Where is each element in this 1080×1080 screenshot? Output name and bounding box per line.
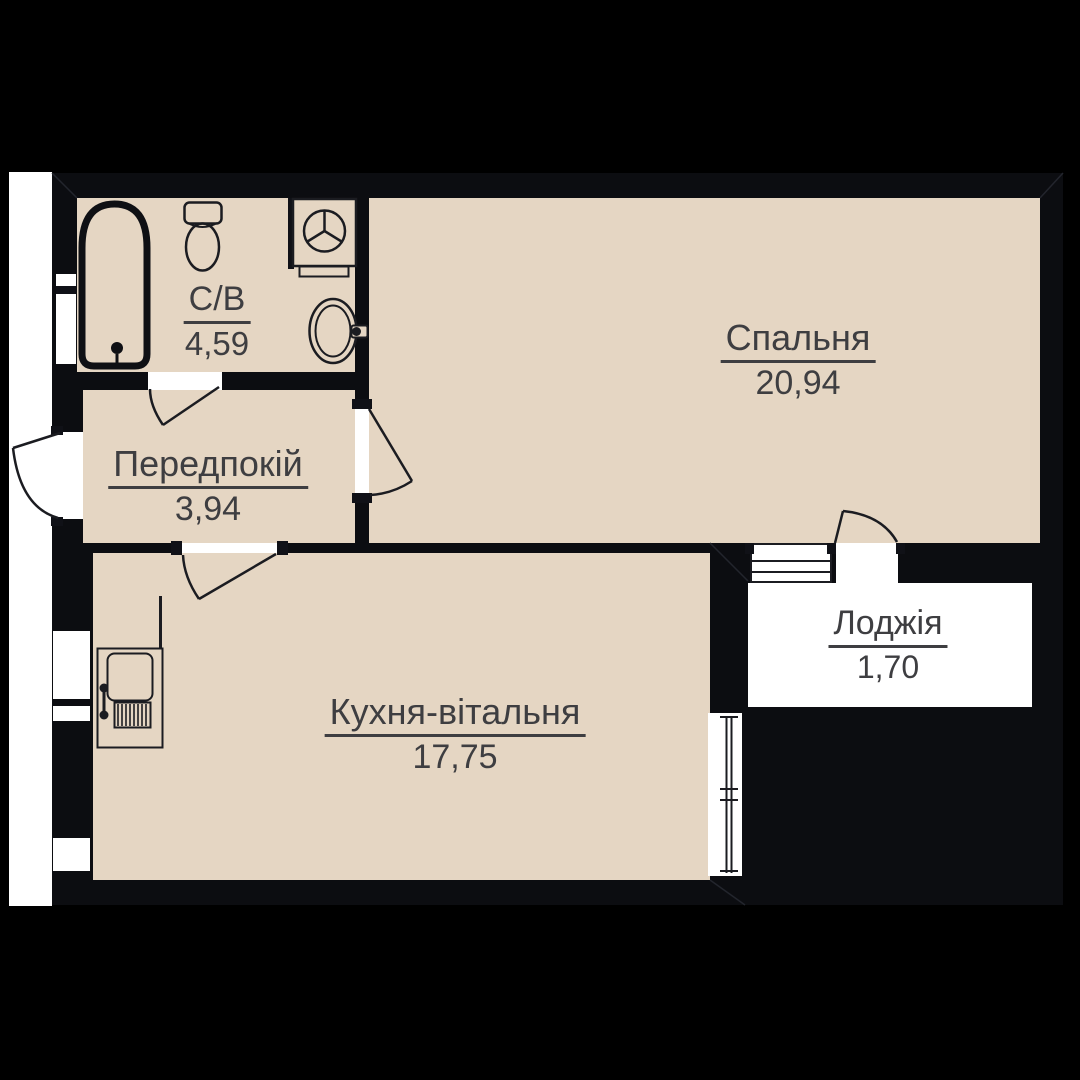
kitchen-door-swing (183, 554, 276, 599)
bathroom-door-swing (150, 387, 219, 425)
floor-plan-canvas: С/В 4,59 Передпокій 3,94 Спальня 20,94 К… (0, 0, 1080, 1080)
boiler-radiator-icon (98, 649, 163, 748)
radiator-fins (118, 704, 146, 726)
loggia-window-glazing (752, 561, 830, 572)
room-area-bathroom: 4,59 (185, 326, 249, 362)
kitchen-right-window-glazing (720, 716, 738, 873)
room-name-bathroom: С/В (184, 280, 251, 324)
room-label-loggia: Лоджія 1,70 (828, 604, 947, 685)
room-area-loggia: 1,70 (857, 650, 919, 685)
sink-icon (310, 299, 368, 363)
room-area-hallway: 3,94 (175, 491, 241, 528)
room-name-loggia: Лоджія (828, 604, 947, 648)
toilet-icon (185, 203, 222, 271)
room-name-bedroom: Спальня (721, 317, 876, 363)
room-area-bedroom: 20,94 (755, 365, 840, 402)
room-name-hallway: Передпокій (108, 443, 308, 489)
room-label-bedroom: Спальня 20,94 (721, 317, 876, 403)
bathtub-icon (82, 204, 147, 366)
entrance-door-swing (13, 433, 60, 518)
room-label-bathroom: С/В 4,59 (184, 280, 251, 362)
room-area-kitchen: 17,75 (412, 739, 497, 776)
plan-linework (0, 0, 1080, 1080)
room-name-kitchen: Кухня-вітальня (325, 691, 586, 737)
washing-machine-icon (293, 199, 356, 277)
room-label-hallway: Передпокій 3,94 (108, 443, 308, 529)
loggia-door-swing (835, 511, 897, 543)
bedroom-door-swing (369, 409, 412, 495)
room-label-kitchen: Кухня-вітальня 17,75 (325, 691, 586, 777)
